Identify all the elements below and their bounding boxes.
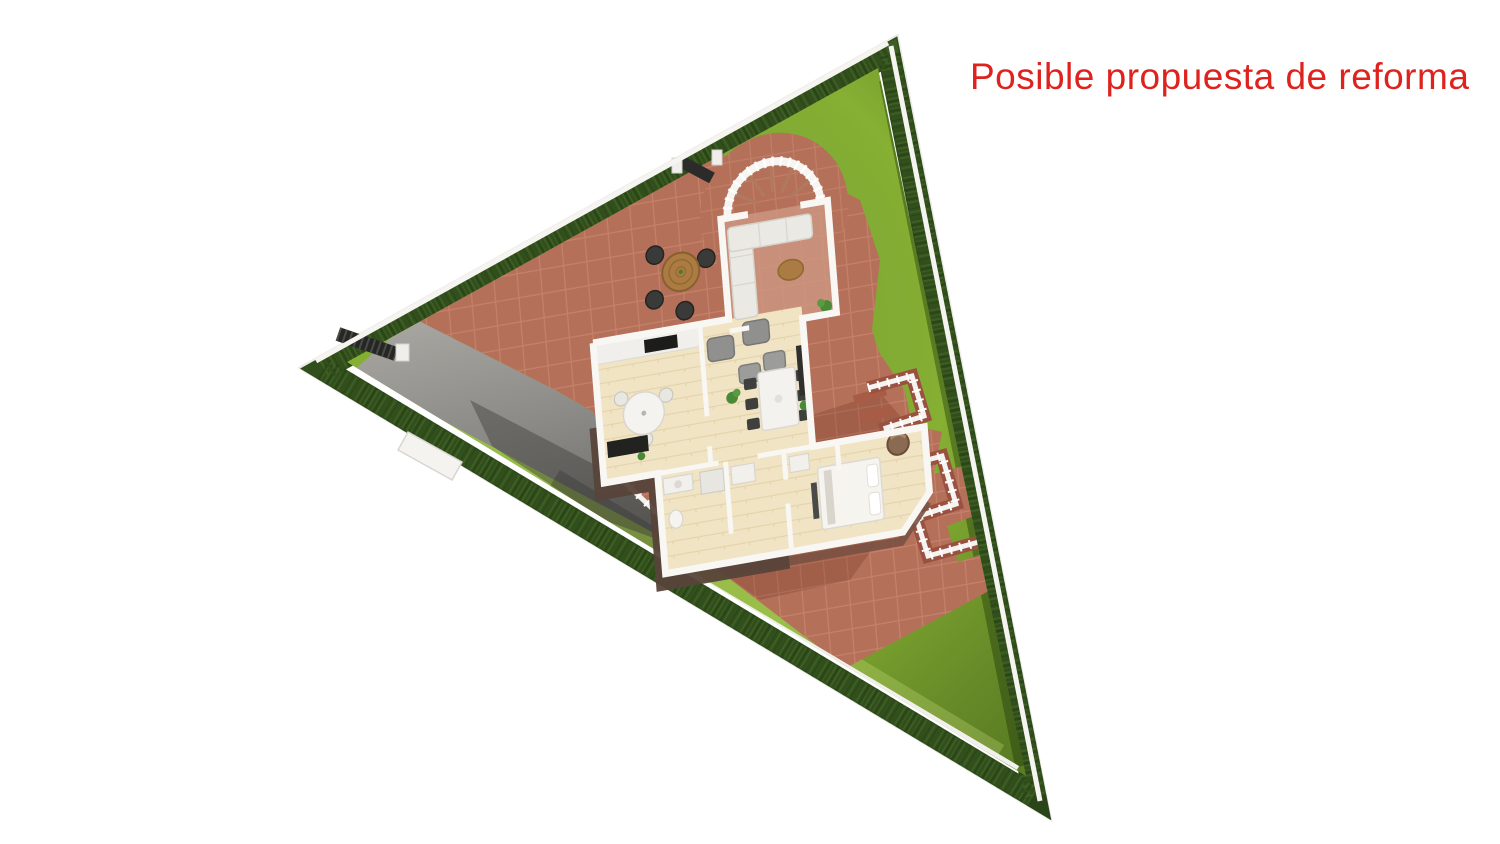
dining-chair xyxy=(747,417,760,430)
gray-armchair xyxy=(707,335,735,363)
pillow xyxy=(869,492,881,516)
page-title: Posible propuesta de reforma xyxy=(970,56,1469,97)
hall-cabinet xyxy=(731,463,756,485)
gate-pillar xyxy=(712,150,722,165)
pillow xyxy=(866,464,878,488)
gray-armchair xyxy=(742,318,770,346)
render-canvas: Posible propuesta de reforma xyxy=(0,0,1500,844)
site-plan-render: Posible propuesta de reforma xyxy=(0,0,1500,844)
dining-chair xyxy=(745,397,758,410)
dining-chair xyxy=(743,377,756,390)
shower xyxy=(700,468,725,494)
gate-pillar xyxy=(396,344,409,361)
storage-cabinet xyxy=(789,453,810,472)
